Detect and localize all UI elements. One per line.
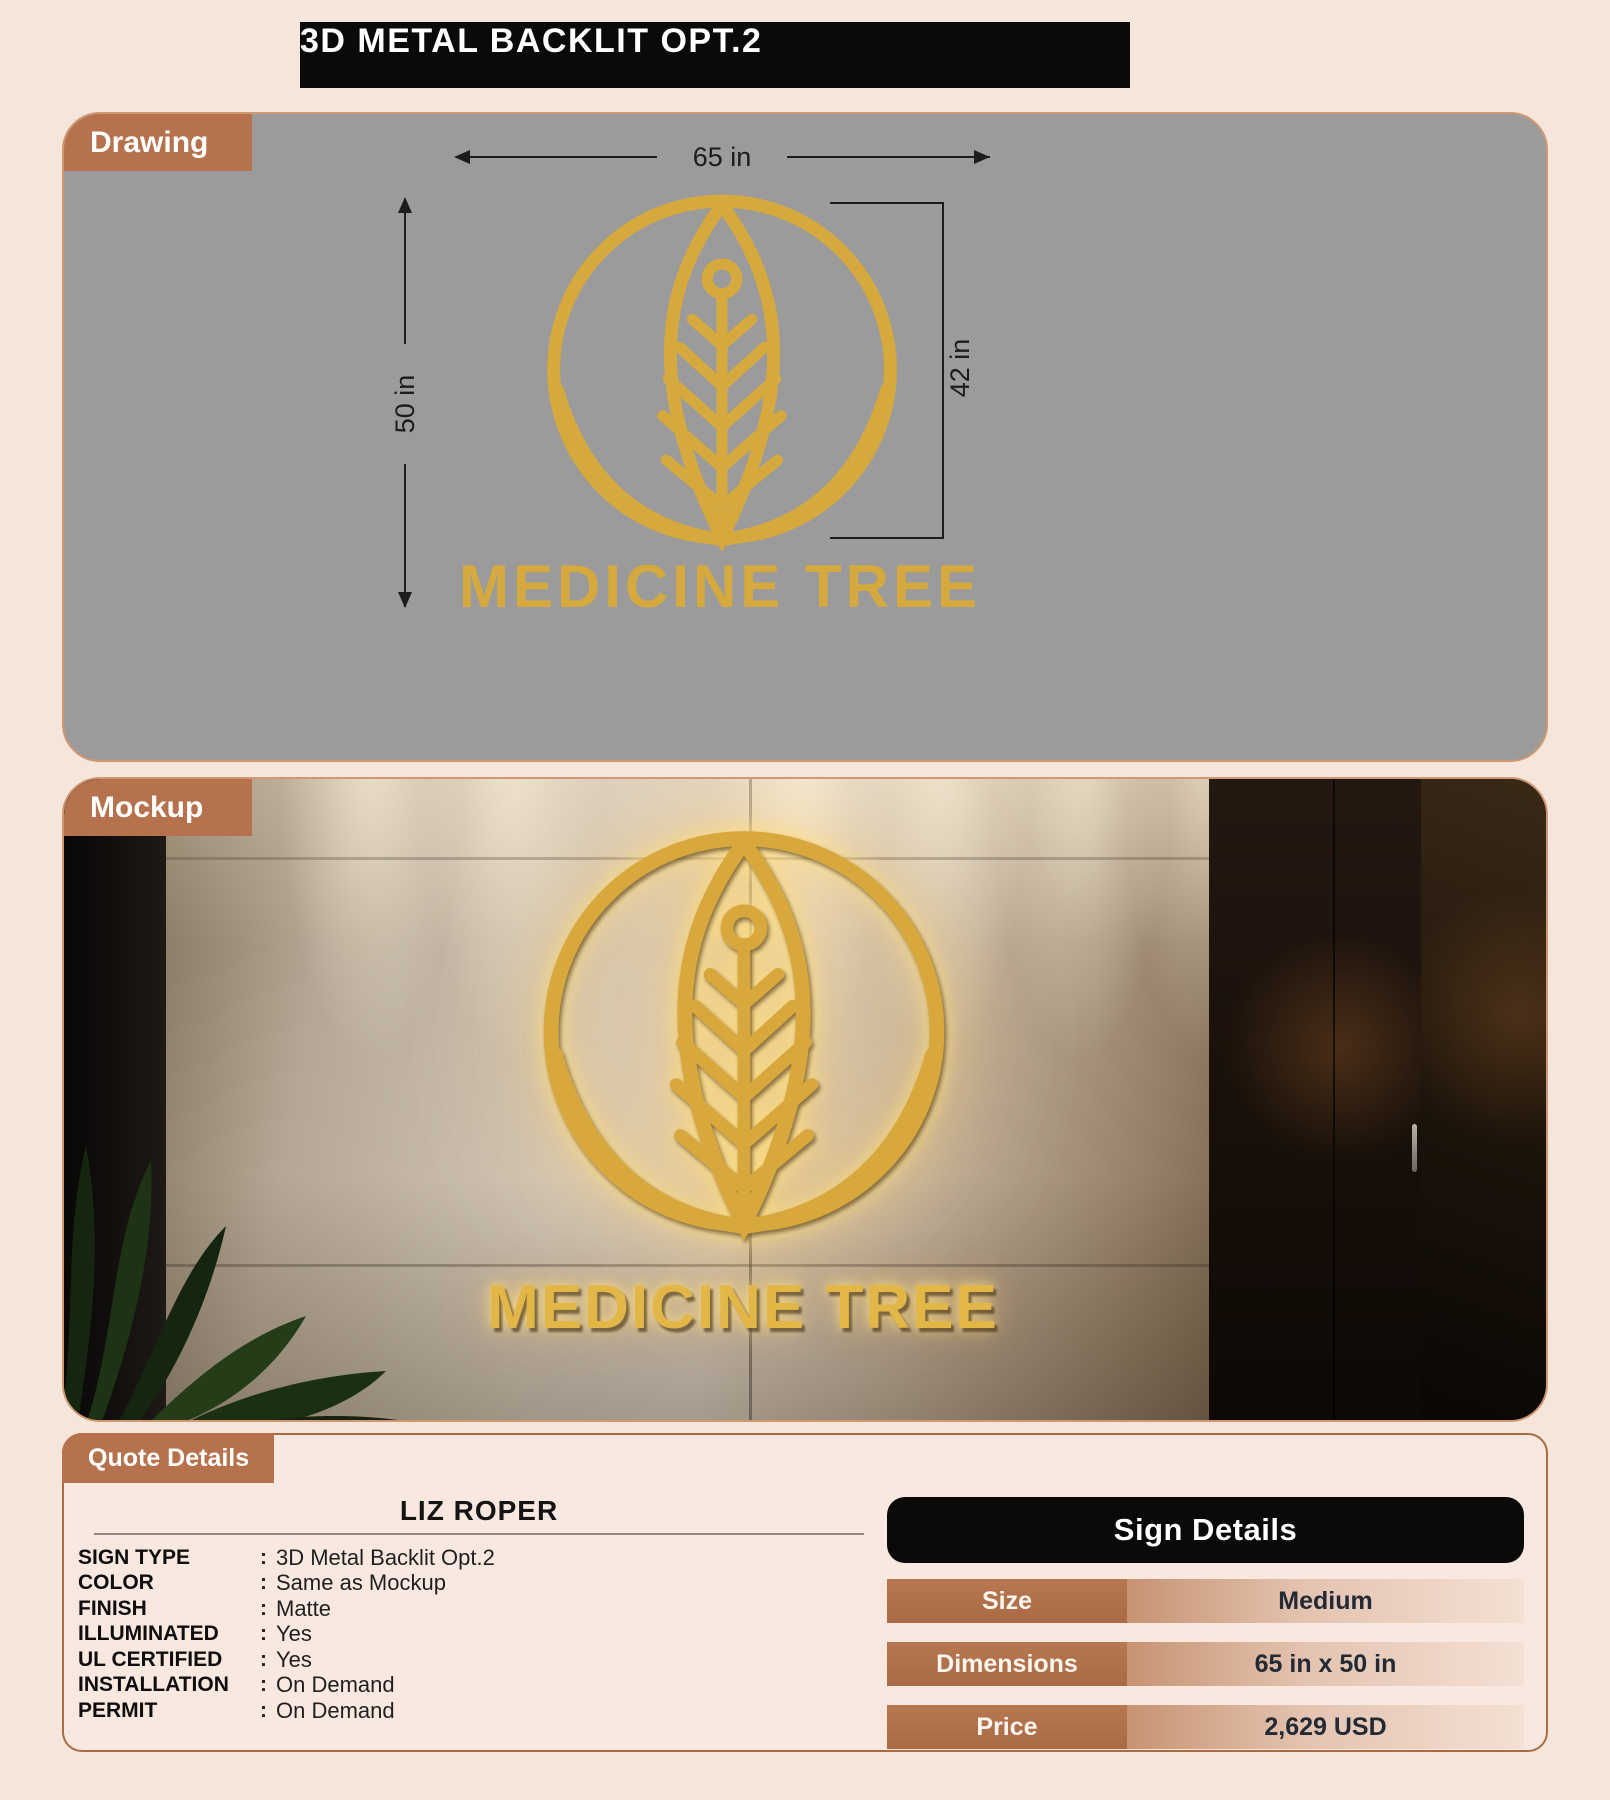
field-separator: : xyxy=(260,1546,267,1570)
field-value: Matte xyxy=(276,1596,331,1622)
field-separator: : xyxy=(260,1571,267,1595)
field-separator: : xyxy=(260,1648,267,1672)
sign-details-row-size: Size Medium xyxy=(887,1579,1524,1623)
drawing-panel: Drawing 65 in 50 in 42 in xyxy=(62,112,1548,762)
logo-height-label: 42 in xyxy=(946,318,974,418)
field-separator: : xyxy=(260,1597,267,1621)
quote-field-row: ILLUMINATED : Yes xyxy=(78,1622,868,1648)
plant-leaves xyxy=(62,1066,496,1422)
quote-details-tab: Quote Details xyxy=(62,1433,274,1483)
field-separator: : xyxy=(260,1622,267,1646)
row-label: Size xyxy=(887,1579,1127,1623)
row-value: 65 in x 50 in xyxy=(1127,1642,1524,1686)
quote-details-tab-label: Quote Details xyxy=(88,1444,249,1473)
arrowhead-left-icon xyxy=(454,150,470,164)
field-value: On Demand xyxy=(276,1672,395,1698)
door-handle xyxy=(1412,1124,1417,1172)
page-title: 3D METAL BACKLIT OPT.2 xyxy=(300,22,762,60)
mockup-tab: Mockup xyxy=(64,779,252,836)
quote-details-panel: Quote Details LIZ ROPER SIGN TYPE : 3D M… xyxy=(62,1433,1548,1752)
field-label: FINISH xyxy=(78,1597,260,1621)
arrowhead-up-icon xyxy=(398,197,412,213)
panel-light-glow xyxy=(1421,869,1548,1289)
medicine-tree-logo xyxy=(537,190,907,560)
field-label: SIGN TYPE xyxy=(78,1546,260,1570)
drawing-tab: Drawing xyxy=(64,114,252,171)
quote-field-row: UL CERTIFIED : Yes xyxy=(78,1647,868,1673)
field-label: ILLUMINATED xyxy=(78,1622,260,1646)
title-banner: 3D METAL BACKLIT OPT.2 xyxy=(300,22,1130,88)
row-value: Medium xyxy=(1127,1579,1524,1623)
mockup-wordmark: MEDICINE TREE xyxy=(343,1272,1143,1343)
sign-details-row-dimensions: Dimensions 65 in x 50 in xyxy=(887,1642,1524,1686)
mockup-tab-label: Mockup xyxy=(90,791,203,825)
field-label: PERMIT xyxy=(78,1699,260,1723)
row-value: 2,629 USD xyxy=(1127,1705,1524,1749)
sign-details-row-price: Price 2,629 USD xyxy=(887,1705,1524,1749)
quote-fields: SIGN TYPE : 3D Metal Backlit Opt.2 COLOR… xyxy=(78,1545,868,1724)
field-label: UL CERTIFIED xyxy=(78,1648,260,1672)
quote-field-row: INSTALLATION : On Demand xyxy=(78,1673,868,1699)
drawing-tab-label: Drawing xyxy=(90,126,208,160)
row-label: Price xyxy=(887,1705,1127,1749)
field-separator: : xyxy=(260,1699,267,1723)
arrowhead-right-icon xyxy=(974,150,990,164)
door-light-glow xyxy=(1209,899,1421,1229)
mockup-panel: MEDICINE TREE Mockup xyxy=(62,777,1548,1422)
quote-field-row: PERMIT : On Demand xyxy=(78,1698,868,1724)
field-value: Yes xyxy=(276,1621,312,1647)
field-value: Same as Mockup xyxy=(276,1570,446,1596)
quote-field-row: SIGN TYPE : 3D Metal Backlit Opt.2 xyxy=(78,1545,868,1571)
field-label: COLOR xyxy=(78,1571,260,1595)
wood-door xyxy=(1209,779,1421,1420)
drawing-wordmark: MEDICINE TREE xyxy=(320,552,1120,621)
door-seam xyxy=(1333,779,1335,1420)
sign-details-title: Sign Details xyxy=(1114,1512,1297,1548)
quote-sheet: 3D METAL BACKLIT OPT.2 Drawing 65 in 50 … xyxy=(0,0,1610,1800)
field-label: INSTALLATION xyxy=(78,1673,260,1697)
sign-details-header: Sign Details xyxy=(887,1497,1524,1563)
medicine-tree-logo-mockup xyxy=(532,826,956,1250)
quote-field-row: COLOR : Same as Mockup xyxy=(78,1571,868,1597)
height-dimension-label: 50 in xyxy=(389,344,421,464)
customer-name: LIZ ROPER xyxy=(79,1495,879,1527)
field-value: On Demand xyxy=(276,1698,395,1724)
quote-field-row: FINISH : Matte xyxy=(78,1596,868,1622)
divider xyxy=(94,1533,864,1535)
field-value: Yes xyxy=(276,1647,312,1673)
field-separator: : xyxy=(260,1673,267,1697)
field-value: 3D Metal Backlit Opt.2 xyxy=(276,1545,495,1571)
right-wood-panel xyxy=(1421,779,1548,1420)
row-label: Dimensions xyxy=(887,1642,1127,1686)
width-dimension-label: 65 in xyxy=(657,140,787,174)
